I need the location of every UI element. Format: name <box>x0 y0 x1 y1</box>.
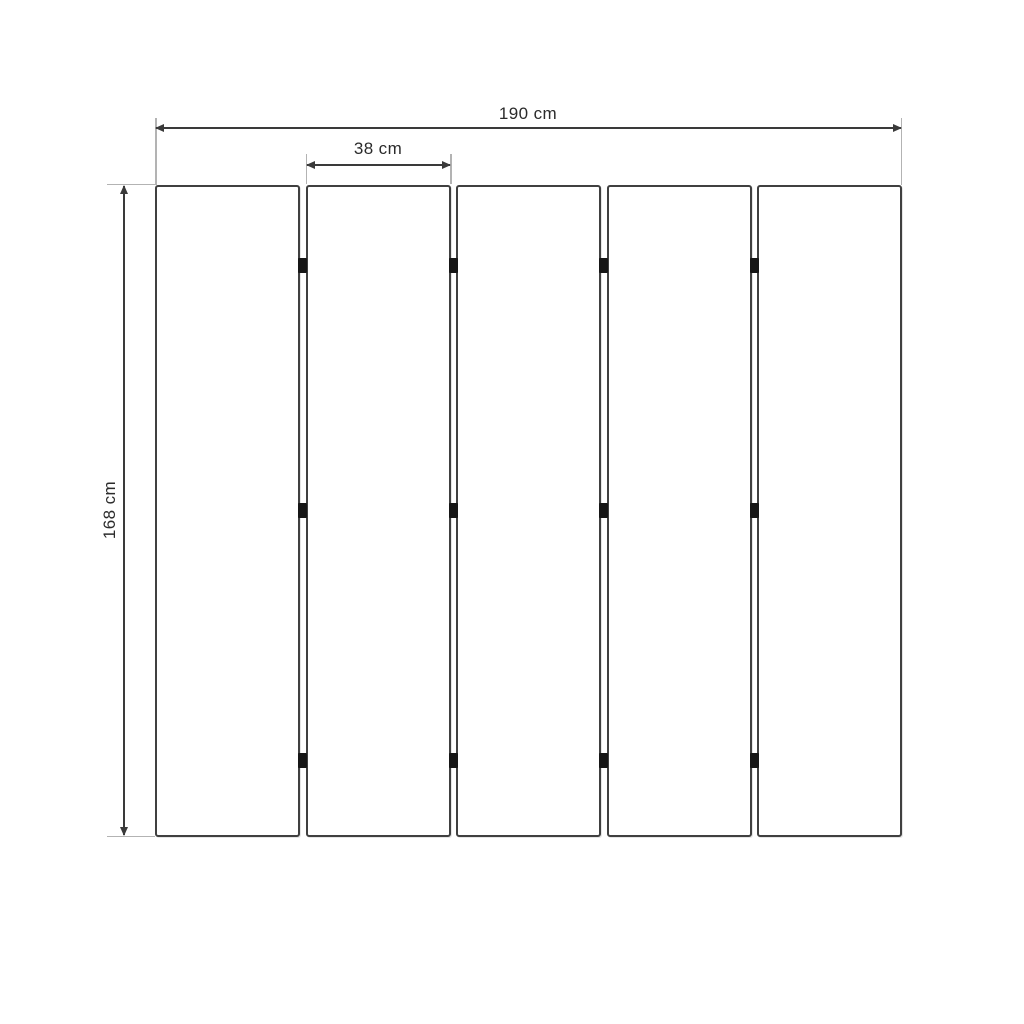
panel <box>306 185 451 837</box>
hinge-mark <box>449 503 458 518</box>
hinge-mark <box>449 753 458 768</box>
height-label: 168 cm <box>100 481 120 539</box>
hinge-mark <box>449 258 458 273</box>
hinge-mark <box>599 753 608 768</box>
hinge-mark <box>298 753 307 768</box>
total-width-label: 190 cm <box>499 104 557 124</box>
panel-width-dimension-line <box>307 164 450 166</box>
extension-line <box>450 154 452 184</box>
extension-line <box>306 154 308 184</box>
panel <box>757 185 902 837</box>
hinge-mark <box>298 503 307 518</box>
hinge-mark <box>599 258 608 273</box>
hinge-mark <box>750 503 759 518</box>
total-width-dimension-line <box>156 127 901 129</box>
hinge-mark <box>599 503 608 518</box>
hinge-mark <box>750 258 759 273</box>
hinge-mark <box>298 258 307 273</box>
hinge-mark <box>750 753 759 768</box>
panel <box>155 185 300 837</box>
height-dimension-line <box>123 186 125 835</box>
folding-screen-diagram: 190 cm 38 cm 168 cm <box>0 0 1024 1024</box>
panel <box>456 185 601 837</box>
panel <box>607 185 752 837</box>
panel-width-label: 38 cm <box>354 139 402 159</box>
extension-line <box>107 184 155 186</box>
extension-line <box>107 836 155 838</box>
